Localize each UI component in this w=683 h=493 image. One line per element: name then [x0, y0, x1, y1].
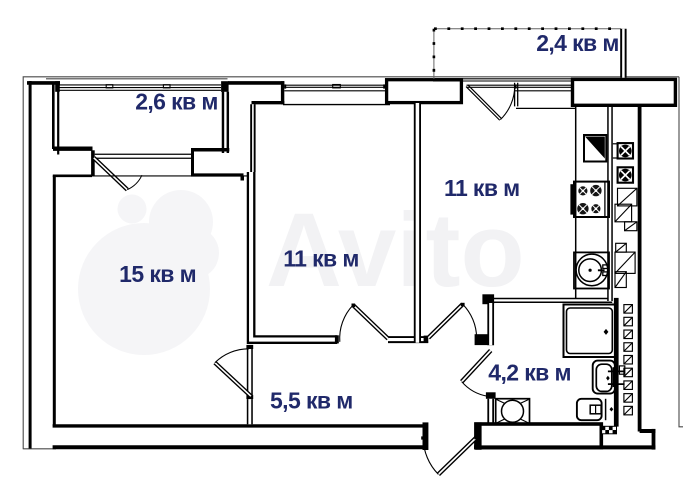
svg-text:5,5 кв м: 5,5 кв м	[270, 388, 353, 414]
svg-text:4,2 кв м: 4,2 кв м	[488, 359, 571, 385]
svg-text:15 кв м: 15 кв м	[119, 261, 196, 287]
svg-text:2,4 кв м: 2,4 кв м	[536, 30, 619, 56]
svg-text:11 кв м: 11 кв м	[444, 175, 520, 201]
svg-text:11 кв м: 11 кв м	[283, 245, 359, 271]
svg-text:2,6 кв м: 2,6 кв м	[135, 89, 218, 115]
